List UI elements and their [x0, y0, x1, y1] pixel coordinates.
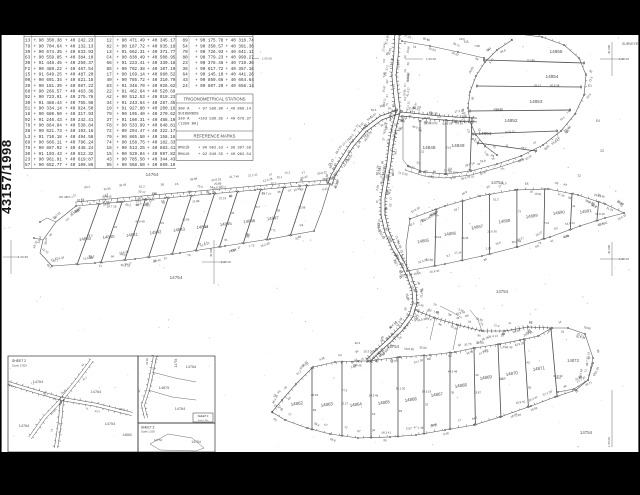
- svg-text:+ 90 533.99: + 90 533.99: [117, 124, 146, 129]
- svg-text:35.98: 35.98: [298, 206, 305, 210]
- svg-text:20.98: 20.98: [426, 258, 434, 262]
- svg-text:Scale 1:500: Scale 1:500: [198, 420, 209, 422]
- svg-text:14754: 14754: [387, 344, 400, 349]
- svg-text:7.89: 7.89: [433, 310, 439, 314]
- svg-text:44.6: 44.6: [120, 252, 126, 257]
- svg-text:+ 40 678.37: + 40 678.37: [226, 118, 251, 122]
- svg-text:11.21: 11.21: [508, 130, 515, 134]
- svg-text:+ 90 145.10: + 90 145.10: [195, 73, 224, 78]
- svg-text:+ 90 865.50: + 90 865.50: [117, 135, 146, 140]
- svg-text:RM310: RM310: [178, 147, 190, 151]
- svg-text:14848: 14848: [422, 145, 435, 150]
- svg-text:Scale 1:500: Scale 1:500: [141, 430, 155, 434]
- svg-text:14855: 14855: [549, 49, 562, 54]
- svg-text:+ 90 195.40: + 90 195.40: [117, 112, 146, 117]
- svg-text:55.7: 55.7: [521, 146, 527, 150]
- svg-text:+ 40 467.54: + 40 467.54: [65, 67, 94, 72]
- svg-text:E4: E4: [448, 167, 452, 171]
- svg-text:D4: D4: [313, 408, 317, 412]
- svg-text:19: 19: [426, 309, 430, 313]
- svg-text:52.9 29: 52.9 29: [442, 121, 452, 126]
- svg-text:+ 40 182.33: + 40 182.33: [147, 141, 176, 146]
- svg-text:34.49: 34.49: [505, 345, 513, 349]
- svg-text:+ 90 674.35: + 90 674.35: [34, 50, 63, 55]
- svg-text:19.9: 19.9: [480, 159, 486, 163]
- svg-text:20.40: 20.40: [153, 258, 161, 263]
- svg-text:5.97: 5.97: [406, 426, 412, 430]
- svg-text:22.58: 22.58: [145, 358, 149, 365]
- svg-text:SURVEYED: SURVEYED: [622, 42, 640, 46]
- svg-text:39.65: 39.65: [423, 116, 430, 120]
- svg-text:43: 43: [107, 158, 113, 163]
- svg-text:T3: T3: [105, 194, 109, 198]
- svg-text:51.2: 51.2: [493, 197, 499, 202]
- svg-text:23: 23: [25, 158, 31, 163]
- svg-text:14764: 14764: [186, 365, 197, 369]
- svg-text:+ 90 559.85: + 90 559.85: [34, 56, 63, 61]
- svg-text:14764: 14764: [33, 380, 44, 384]
- svg-text:14754: 14754: [496, 289, 509, 294]
- svg-text:18: 18: [25, 112, 31, 117]
- svg-text:+ 90 785.50: + 90 785.50: [117, 158, 146, 163]
- svg-text:31.7 46: 31.7 46: [229, 174, 239, 178]
- svg-text:24: 24: [183, 84, 189, 89]
- svg-text:+ 40 962.54: + 40 962.54: [226, 153, 252, 157]
- svg-text:F8: F8: [107, 124, 113, 129]
- svg-text:95: 95: [107, 163, 113, 168]
- svg-text:+ 40 538.84: + 40 538.84: [65, 124, 94, 129]
- svg-text:14849: 14849: [451, 143, 464, 148]
- svg-text:34: 34: [107, 101, 113, 106]
- svg-text:+ 40 508.95: + 40 508.95: [147, 56, 176, 61]
- svg-text:39: 39: [451, 390, 455, 394]
- svg-text:71.6: 71.6: [544, 221, 550, 225]
- svg-text:40 000: 40 000: [607, 244, 611, 254]
- svg-text:79: 79: [25, 44, 31, 49]
- svg-text:1 00.00: 1 00.00: [619, 57, 629, 61]
- svg-text:84: 84: [419, 289, 423, 293]
- svg-text:+ 92 640.55: + 92 640.55: [198, 153, 224, 157]
- svg-text:77.3: 77.3: [342, 389, 348, 393]
- svg-text:37: 37: [107, 118, 113, 123]
- svg-text:12: 12: [107, 39, 113, 44]
- svg-text:+ 91 348.70: + 91 348.70: [117, 84, 146, 89]
- svg-text:12.96: 12.96: [182, 218, 189, 222]
- svg-text:+ 90 726.93: + 90 726.93: [195, 50, 224, 55]
- svg-text:+ 40 275.78: + 40 275.78: [65, 95, 94, 100]
- svg-text:+ 40 158.16: + 40 158.16: [147, 135, 176, 140]
- svg-text:+ 90 652.77: + 90 652.77: [34, 163, 63, 168]
- svg-text:14754: 14754: [174, 358, 178, 367]
- svg-text:+ 40 448.24: + 40 448.24: [65, 146, 94, 151]
- svg-text:+ 40 919.23: + 40 919.23: [147, 95, 176, 100]
- svg-text:+ 90 350.57: + 90 350.57: [195, 44, 224, 49]
- svg-text:+ 40 848.81: + 40 848.81: [147, 124, 176, 129]
- svg-text:1 00.00: 1 00.00: [426, 57, 436, 61]
- svg-text:+ 40 391.30: + 40 391.30: [226, 44, 255, 49]
- svg-text:39: 39: [25, 84, 31, 89]
- svg-text:68: 68: [25, 90, 31, 95]
- svg-text:14851: 14851: [478, 131, 491, 136]
- svg-text:+ 91 927.80: + 91 927.80: [117, 107, 146, 112]
- svg-text:27: 27: [381, 137, 385, 141]
- svg-text:+ 90 294.47: + 90 294.47: [117, 129, 146, 134]
- svg-text:+ 40 193.16: + 40 193.16: [65, 129, 94, 134]
- svg-text:66: 66: [107, 61, 113, 66]
- svg-text:28.49: 28.49: [311, 393, 318, 397]
- svg-text:A5: A5: [526, 361, 530, 365]
- svg-text:87: 87: [357, 429, 361, 433]
- svg-text:+ 40 924.50: + 40 924.50: [65, 107, 94, 112]
- svg-text:SHEET 3: SHEET 3: [198, 414, 209, 418]
- svg-text:300 A: 300 A: [178, 108, 190, 112]
- svg-text:L3: L3: [107, 50, 113, 55]
- svg-text:+ 40 132.13: + 40 132.13: [65, 44, 94, 49]
- svg-text:7.68: 7.68: [474, 44, 480, 48]
- svg-text:+ 90 807.29: + 90 807.29: [195, 84, 224, 89]
- svg-text:14853: 14853: [529, 99, 542, 104]
- svg-text:+ 40 869.19: + 40 869.19: [147, 163, 176, 168]
- svg-text:+ 90 779.23: + 90 779.23: [195, 56, 224, 61]
- svg-text:82: 82: [107, 44, 113, 49]
- svg-text:51: 51: [25, 107, 31, 112]
- svg-text:320 A: 320 A: [178, 118, 190, 122]
- svg-text:39.57: 39.57: [391, 168, 395, 176]
- svg-text:E6: E6: [525, 182, 529, 186]
- svg-text:+ 40 494.58: + 40 494.58: [65, 135, 94, 140]
- svg-text:17.34: 17.34: [454, 250, 462, 254]
- svg-text:+ 40 242.41: + 40 242.41: [65, 118, 94, 123]
- svg-text:+ 38 397.56: + 38 397.56: [226, 147, 252, 151]
- svg-text:+ 40 345.17: + 40 345.17: [147, 39, 176, 44]
- svg-text:+ 40 619.87: + 40 619.87: [65, 158, 94, 163]
- svg-text:38.23: 38.23: [44, 237, 49, 245]
- svg-text:14754: 14754: [154, 438, 163, 442]
- svg-text:+ 90 175.78: + 90 175.78: [195, 39, 224, 44]
- svg-text:18.28: 18.28: [424, 121, 432, 125]
- svg-text:72: 72: [107, 129, 113, 134]
- svg-text:+ 90 702.38: + 90 702.38: [117, 67, 146, 72]
- svg-text:1 00.00: 1 00.00: [262, 57, 272, 61]
- svg-text:38.85: 38.85: [102, 200, 110, 205]
- svg-text:69: 69: [25, 141, 31, 146]
- svg-text:11.88: 11.88: [192, 199, 200, 203]
- svg-text:+ 40 487.20: + 40 487.20: [65, 73, 94, 78]
- svg-text:+ 40 319.79: + 40 319.79: [147, 78, 176, 83]
- svg-text:14754: 14754: [170, 275, 183, 280]
- svg-text:+ 40 926.62: + 40 926.62: [147, 84, 176, 89]
- svg-text:14754: 14754: [105, 422, 116, 426]
- svg-text:86.7: 86.7: [393, 148, 397, 154]
- svg-text:66: 66: [380, 160, 384, 164]
- svg-text:+ 91 662.31: + 91 662.31: [117, 50, 146, 55]
- svg-text:+ 90 568.50: + 90 568.50: [117, 163, 146, 168]
- svg-text:+ 40 488.10: + 40 488.10: [147, 118, 176, 123]
- svg-text:+ 90 704.64: + 90 704.64: [34, 44, 63, 49]
- svg-text:REFERENCE MARKS: REFERENCE MARKS: [194, 133, 236, 138]
- svg-text:18: 18: [107, 146, 113, 151]
- svg-text:D7: D7: [386, 140, 390, 144]
- svg-text:57: 57: [529, 321, 533, 325]
- svg-text:+ 91 448.45: + 91 448.45: [34, 61, 63, 66]
- svg-text:+ 40 371.77: + 40 371.77: [147, 50, 176, 55]
- svg-text:+ 40 719.36: + 40 719.36: [226, 61, 255, 66]
- svg-text:5.68: 5.68: [396, 62, 400, 68]
- svg-text:10.81: 10.81: [534, 192, 542, 197]
- svg-text:+ 91 488.44: + 91 488.44: [34, 101, 63, 106]
- svg-text:+ 40 259.37: + 40 259.37: [65, 61, 94, 66]
- svg-text:29.3 26: 29.3 26: [364, 350, 374, 354]
- svg-text:+ 90 529.94: + 90 529.94: [117, 152, 146, 157]
- svg-text:40 000: 40 000: [209, 247, 213, 257]
- svg-text:1 00.50: 1 00.50: [18, 255, 28, 259]
- svg-text:14764: 14764: [19, 424, 30, 428]
- svg-text:+ 40 999.27: + 40 999.27: [226, 56, 255, 61]
- svg-text:17: 17: [107, 73, 113, 78]
- svg-text:+ 40 384.10: + 40 384.10: [65, 56, 94, 61]
- svg-text:+ 40 330.18: + 40 330.18: [147, 61, 176, 66]
- svg-text:C3: C3: [372, 412, 376, 416]
- svg-text:1 00.00: 1 00.00: [619, 257, 629, 261]
- svg-text:33: 33: [425, 402, 429, 406]
- svg-text:(1350 BA): (1350 BA): [178, 122, 199, 127]
- svg-text:+ 40 344.43: + 40 344.43: [147, 158, 176, 163]
- svg-text:+ 90 378.46: + 90 378.46: [195, 61, 224, 66]
- svg-text:64: 64: [183, 73, 189, 78]
- svg-text:SUIKERBOS: SUIKERBOS: [178, 113, 199, 117]
- svg-text:14875: 14875: [159, 386, 170, 390]
- svg-text:+ 90 471.49: + 90 471.49: [117, 39, 146, 44]
- svg-text:39.35: 39.35: [461, 236, 468, 240]
- svg-text:43: 43: [183, 78, 189, 83]
- svg-text:+ 40 107.19: + 40 107.19: [147, 67, 176, 72]
- svg-text:D1: D1: [231, 248, 235, 252]
- svg-text:13.27: 13.27: [341, 401, 348, 405]
- svg-text:+ 40 833.93: + 40 833.93: [65, 50, 94, 55]
- svg-text:34.99: 34.99: [496, 108, 503, 112]
- svg-text:+ 40 357.16: + 40 357.16: [226, 67, 255, 72]
- svg-text:5.28: 5.28: [432, 111, 438, 115]
- svg-text:79: 79: [183, 50, 189, 55]
- svg-text:+ 40 664.64: + 40 664.64: [226, 78, 255, 83]
- svg-text:50.8 38: 50.8 38: [550, 84, 560, 88]
- svg-text:1.24: 1.24: [485, 246, 491, 250]
- svg-text:83: 83: [107, 84, 113, 89]
- svg-text:+ 91 246.43: + 91 246.43: [34, 118, 63, 123]
- svg-text:+ 90 266.57: + 90 266.57: [34, 90, 63, 95]
- svg-text:D8: D8: [188, 190, 192, 194]
- svg-text:24: 24: [114, 225, 118, 229]
- svg-text:14852: 14852: [504, 118, 517, 123]
- svg-text:10.79: 10.79: [587, 352, 592, 360]
- svg-text:+ 91 243.64: + 91 243.64: [117, 101, 146, 106]
- svg-text:+ 40 796.24: + 40 796.24: [65, 141, 94, 146]
- svg-text:85: 85: [107, 67, 113, 72]
- svg-text:23: 23: [164, 256, 168, 260]
- svg-text:24: 24: [231, 211, 235, 215]
- svg-text:94: 94: [116, 200, 120, 204]
- svg-text:83.4: 83.4: [84, 185, 90, 190]
- svg-text:+ 90 187.72: + 90 187.72: [117, 44, 146, 49]
- svg-text:19: 19: [107, 107, 113, 112]
- svg-text:52.8 19: 52.8 19: [595, 212, 605, 216]
- svg-text:72: 72: [577, 174, 581, 178]
- svg-text:+ 90 982.53: + 90 982.53: [198, 147, 224, 151]
- svg-text:74: 74: [107, 141, 113, 146]
- svg-text:L7: L7: [204, 241, 208, 245]
- svg-text:79: 79: [107, 112, 113, 117]
- svg-text:39: 39: [25, 50, 31, 55]
- svg-text:+ 90 830.49: + 90 830.49: [117, 56, 146, 61]
- svg-text:29.0: 29.0: [459, 37, 465, 41]
- svg-text:1 00.00: 1 00.00: [607, 437, 611, 447]
- svg-text:+ 40 935.18: + 40 935.18: [147, 44, 176, 49]
- svg-text:C4: C4: [107, 56, 113, 61]
- svg-text:95: 95: [528, 385, 532, 389]
- svg-text:+ 40 242.23: + 40 242.23: [65, 39, 94, 44]
- svg-text:+ 40 520.69: + 40 520.69: [147, 90, 176, 95]
- svg-text:34: 34: [500, 377, 504, 381]
- svg-text:+ 40 987.22: + 40 987.22: [65, 84, 94, 89]
- svg-text:30: 30: [25, 152, 31, 157]
- svg-text:23: 23: [183, 61, 189, 66]
- svg-text:+103 536.85: +103 536.85: [198, 118, 224, 122]
- svg-text:+ 90 169.14: + 90 169.14: [117, 73, 146, 78]
- svg-text:37.24: 37.24: [219, 196, 227, 200]
- svg-text:19.24: 19.24: [434, 235, 441, 239]
- svg-text:+ 90 961.91: + 90 961.91: [34, 158, 63, 163]
- svg-text:RD 4867-1: RD 4867-1: [59, 195, 73, 199]
- svg-text:14854: 14854: [545, 74, 558, 79]
- svg-text:13: 13: [25, 39, 31, 44]
- svg-text:89: 89: [183, 39, 189, 44]
- svg-text:39.17: 39.17: [534, 84, 541, 88]
- svg-text:14764: 14764: [91, 390, 102, 394]
- svg-text:14754: 14754: [175, 407, 186, 411]
- svg-text:48.3 41: 48.3 41: [381, 430, 391, 434]
- svg-text:TRIGONOMETRICAL STATIONS: TRIGONOMETRICAL STATIONS: [183, 96, 245, 101]
- svg-text:+ 40 980.52: + 40 980.52: [147, 73, 176, 78]
- svg-text:+ 40 683.41: + 40 683.41: [147, 146, 176, 151]
- svg-text:+ 40 270.62: + 40 270.62: [147, 112, 176, 117]
- svg-text:SHEET 2: SHEET 2: [12, 359, 26, 363]
- svg-text:+ 40 317.93: + 40 317.93: [65, 112, 94, 117]
- svg-text:+ 40 755.98: + 40 755.98: [65, 101, 94, 106]
- svg-text:K5: K5: [399, 409, 403, 413]
- svg-text:21: 21: [421, 150, 425, 154]
- svg-text:14860: 14860: [122, 433, 132, 437]
- svg-text:22: 22: [107, 90, 113, 95]
- svg-text:43157/1998: 43157/1998: [0, 139, 14, 214]
- svg-text:92: 92: [25, 95, 31, 100]
- svg-text:+ 91 649.25: + 91 649.25: [34, 73, 63, 78]
- svg-text:12.2: 12.2: [270, 181, 276, 185]
- svg-text:15: 15: [25, 73, 31, 78]
- svg-text:49.5 48: 49.5 48: [448, 370, 458, 374]
- svg-text:29.3: 29.3: [355, 341, 361, 345]
- svg-text:+ 40 200.16: + 40 200.16: [147, 107, 176, 112]
- svg-text:40: 40: [107, 78, 113, 83]
- svg-text:21: 21: [572, 204, 576, 208]
- svg-text:14754: 14754: [580, 430, 593, 435]
- svg-text:14764: 14764: [146, 172, 159, 177]
- svg-text:79: 79: [107, 135, 113, 140]
- svg-text:E1: E1: [588, 84, 592, 88]
- svg-text:58.8 46: 58.8 46: [404, 347, 414, 351]
- svg-text:+ 90 864.84: + 90 864.84: [34, 124, 63, 129]
- svg-text:+ 90 621.73: + 90 621.73: [34, 129, 63, 134]
- svg-text:+ 90 723.91: + 90 723.91: [34, 95, 63, 100]
- svg-text:RM410: RM410: [178, 153, 190, 157]
- svg-text:86: 86: [471, 96, 475, 100]
- svg-text:20: 20: [475, 373, 479, 377]
- svg-text:15: 15: [107, 152, 113, 157]
- svg-text:11: 11: [505, 144, 508, 148]
- svg-text:+ 90 512.53: + 90 512.53: [117, 95, 146, 100]
- svg-text:+ 90 513.25: + 90 513.25: [117, 146, 146, 151]
- svg-text:22.6 36: 22.6 36: [487, 230, 497, 234]
- svg-text:+ 40 697.82: + 40 697.82: [147, 152, 176, 157]
- svg-text:90: 90: [25, 78, 31, 83]
- svg-text:+ 40 318.74: + 40 318.74: [226, 39, 255, 44]
- svg-text:+ 90 489.22: + 90 489.22: [34, 67, 63, 72]
- svg-text:78: 78: [25, 146, 31, 151]
- svg-text:86.5: 86.5: [431, 423, 437, 427]
- svg-text:73: 73: [518, 210, 522, 214]
- svg-text:+ 90 334.14: + 90 334.14: [34, 107, 63, 112]
- svg-text:+ 40 463.36: + 40 463.36: [65, 90, 94, 95]
- svg-text:53.6: 53.6: [371, 108, 377, 112]
- svg-text:59.3 46: 59.3 46: [369, 393, 379, 397]
- svg-text:14764: 14764: [191, 440, 201, 444]
- svg-text:99: 99: [152, 191, 156, 195]
- svg-text:20.89: 20.89: [214, 181, 222, 185]
- svg-text:36: 36: [183, 67, 189, 72]
- svg-text:+ 40 287.45: + 40 287.45: [147, 101, 176, 106]
- svg-text:33.87: 33.87: [474, 391, 481, 395]
- svg-text:35.52: 35.52: [419, 345, 427, 350]
- svg-text:+ 40 658.14: + 40 658.14: [226, 84, 255, 89]
- svg-text:K3: K3: [437, 115, 441, 119]
- svg-text:75.7: 75.7: [254, 205, 260, 209]
- svg-text:Scale 1:500: Scale 1:500: [12, 364, 27, 368]
- svg-text:+ 90 617.72: + 90 617.72: [195, 67, 224, 72]
- svg-text:25.61: 25.61: [527, 58, 534, 62]
- svg-text:23: 23: [600, 149, 604, 153]
- svg-text:+ 90 691.34: + 90 691.34: [34, 78, 63, 83]
- svg-text:72.9: 72.9: [494, 323, 500, 328]
- svg-text:+ 40 100.86: + 40 100.86: [65, 163, 94, 168]
- svg-text:1.00.00: 1.00.00: [221, 260, 231, 264]
- svg-text:+ 90 680.50: + 90 680.50: [34, 112, 63, 117]
- svg-text:14754: 14754: [491, 180, 504, 185]
- svg-text:7.71: 7.71: [270, 228, 276, 232]
- svg-text:+ 90 181.39: + 90 181.39: [34, 84, 63, 89]
- svg-text:25.1: 25.1: [277, 175, 283, 179]
- svg-text:14873: 14873: [567, 358, 579, 363]
- svg-text:+ 91 462.64: + 91 462.64: [117, 90, 146, 95]
- svg-text:E4: E4: [596, 119, 600, 123]
- svg-text:F2: F2: [25, 67, 31, 72]
- svg-text:63: 63: [25, 56, 31, 61]
- svg-text:81.3: 81.3: [139, 184, 145, 188]
- svg-text:96: 96: [477, 334, 481, 338]
- svg-text:+ 91 223.41: + 91 223.41: [117, 61, 146, 66]
- svg-text:+ 90 859.66: + 90 859.66: [195, 78, 224, 83]
- svg-text:20: 20: [408, 114, 412, 118]
- svg-text:78: 78: [25, 124, 31, 129]
- svg-text:56.1 30: 56.1 30: [396, 387, 406, 391]
